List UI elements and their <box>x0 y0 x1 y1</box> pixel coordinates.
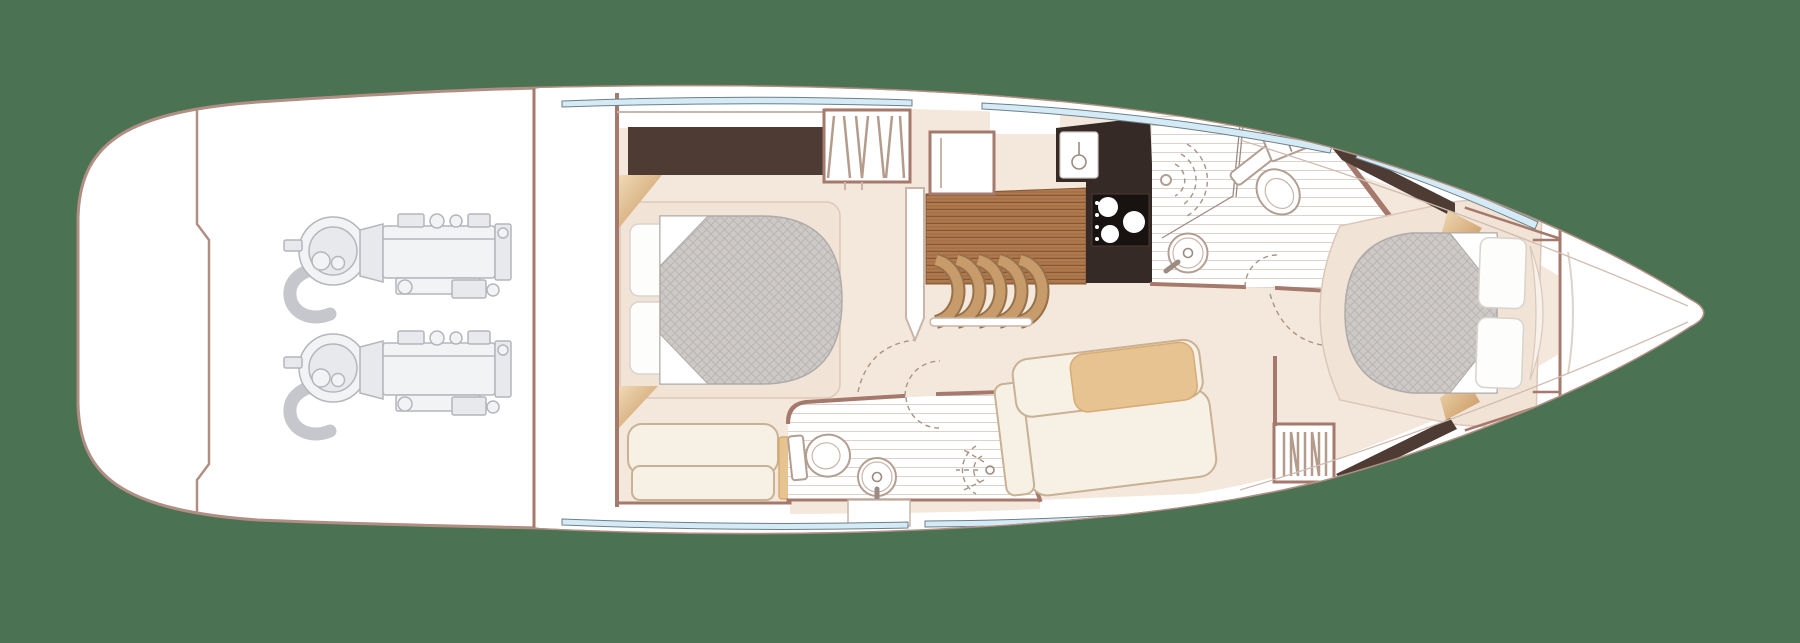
companionway-locker <box>930 132 994 194</box>
mid-cabin-sofa-seat <box>632 466 774 500</box>
fwd-hanging-locker <box>1274 424 1334 482</box>
mid-cabin-hanging-locker <box>824 110 910 190</box>
yacht-floor-plan <box>0 0 1800 643</box>
saloon-sofa <box>991 338 1218 501</box>
void-strip <box>536 90 615 526</box>
deck-patch-aft <box>617 104 824 128</box>
deck-patch-midcabin <box>617 503 790 519</box>
mid-cabin-headboard-unit <box>628 127 823 175</box>
stair-rail-wall <box>906 188 924 340</box>
step-base <box>930 318 1032 326</box>
mid-berth-mattress <box>660 216 842 384</box>
floor-plan-canvas <box>0 0 1800 643</box>
galley-hob <box>1092 194 1149 246</box>
galley-sink <box>1060 132 1098 178</box>
